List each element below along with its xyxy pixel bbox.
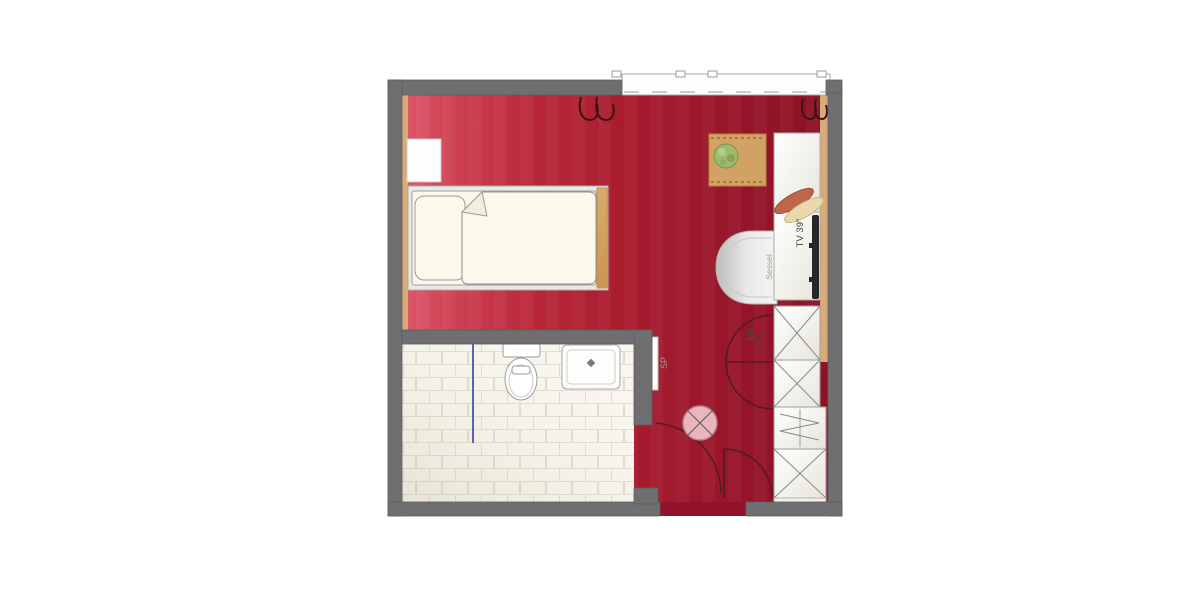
plant-leaf-1	[718, 148, 726, 156]
wall-top-left	[388, 80, 622, 95]
minibar-label: MB	[746, 327, 756, 341]
bathroom	[402, 337, 658, 502]
sink	[562, 345, 620, 389]
window	[612, 71, 830, 95]
wall-left	[388, 80, 402, 516]
wall-bathroom-right	[634, 330, 652, 425]
plant-icon	[714, 144, 738, 168]
wall-bathroom-right-stub	[634, 488, 658, 504]
wall-right	[828, 93, 842, 516]
plant-leaf-2	[727, 154, 735, 162]
window-tick-1	[612, 71, 621, 77]
mirror	[652, 337, 658, 390]
nightstand	[407, 139, 441, 182]
tv-label: TV 39"	[795, 219, 806, 248]
left-wall-wood-trim	[402, 95, 408, 330]
column-symbol	[683, 406, 717, 440]
armchair: Sessel	[716, 231, 777, 304]
wardrobe-section-3	[774, 449, 826, 498]
window-tick-4	[817, 71, 826, 77]
side-table	[709, 134, 766, 186]
mirror-label: SP	[659, 357, 669, 369]
window-tick-3	[708, 71, 717, 77]
toilet-tank	[503, 344, 540, 357]
toilet-bowl	[505, 358, 537, 400]
wardrobe	[774, 306, 826, 504]
armchair-label: Sessel	[764, 254, 774, 280]
toilet-seat-detail	[512, 366, 530, 374]
wall-bottom-right	[746, 502, 842, 516]
window-tick-2	[676, 71, 685, 77]
plant-leaf-3	[720, 159, 726, 165]
headboard	[597, 188, 607, 288]
tv-bracket-1	[809, 243, 812, 248]
wardrobe-section-2	[774, 360, 820, 407]
pillow	[415, 196, 465, 280]
tv-bracket-2	[809, 277, 812, 282]
sideboard: TV 39"	[771, 133, 826, 300]
luggage-rack	[774, 407, 826, 449]
floor-plan-drawing: Sessel TV 39"	[0, 0, 1200, 600]
right-wall-wood-trim	[820, 95, 828, 362]
tv-screen	[812, 215, 819, 299]
entrance-threshold	[660, 502, 746, 516]
wall-bathroom-top	[402, 330, 652, 344]
floor-plan-canvas: Sessel TV 39"	[0, 0, 1200, 600]
wardrobe-section-1	[774, 306, 820, 360]
wall-bottom-left	[388, 502, 660, 516]
bed	[408, 186, 608, 290]
